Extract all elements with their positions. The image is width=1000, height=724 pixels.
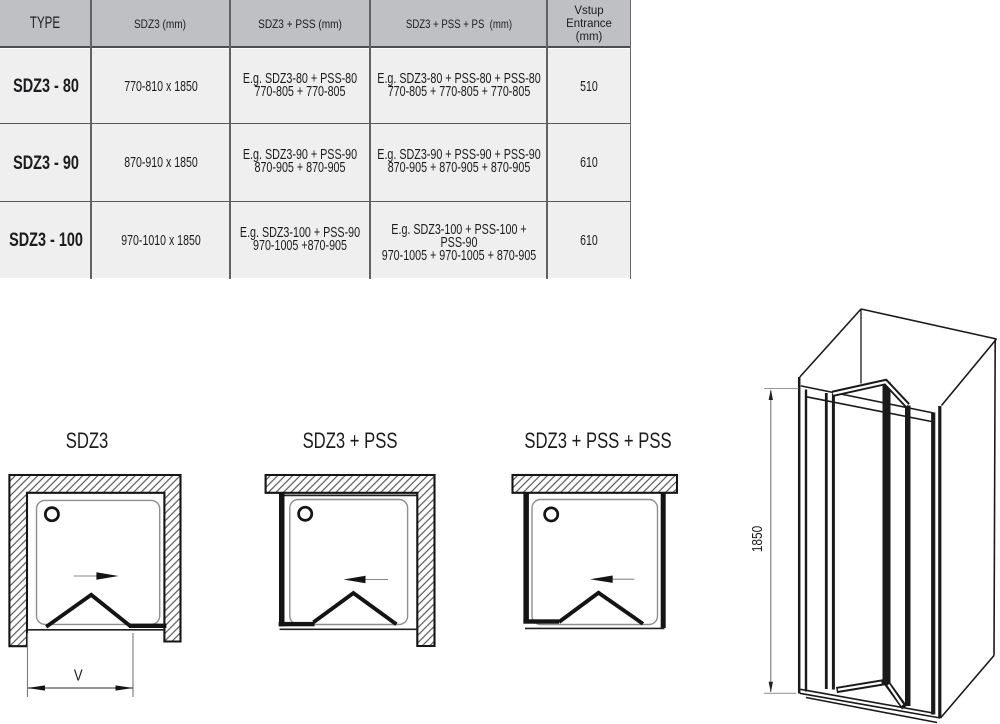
svg-text:1850: 1850 <box>749 526 765 552</box>
svg-text:V: V <box>74 667 83 684</box>
